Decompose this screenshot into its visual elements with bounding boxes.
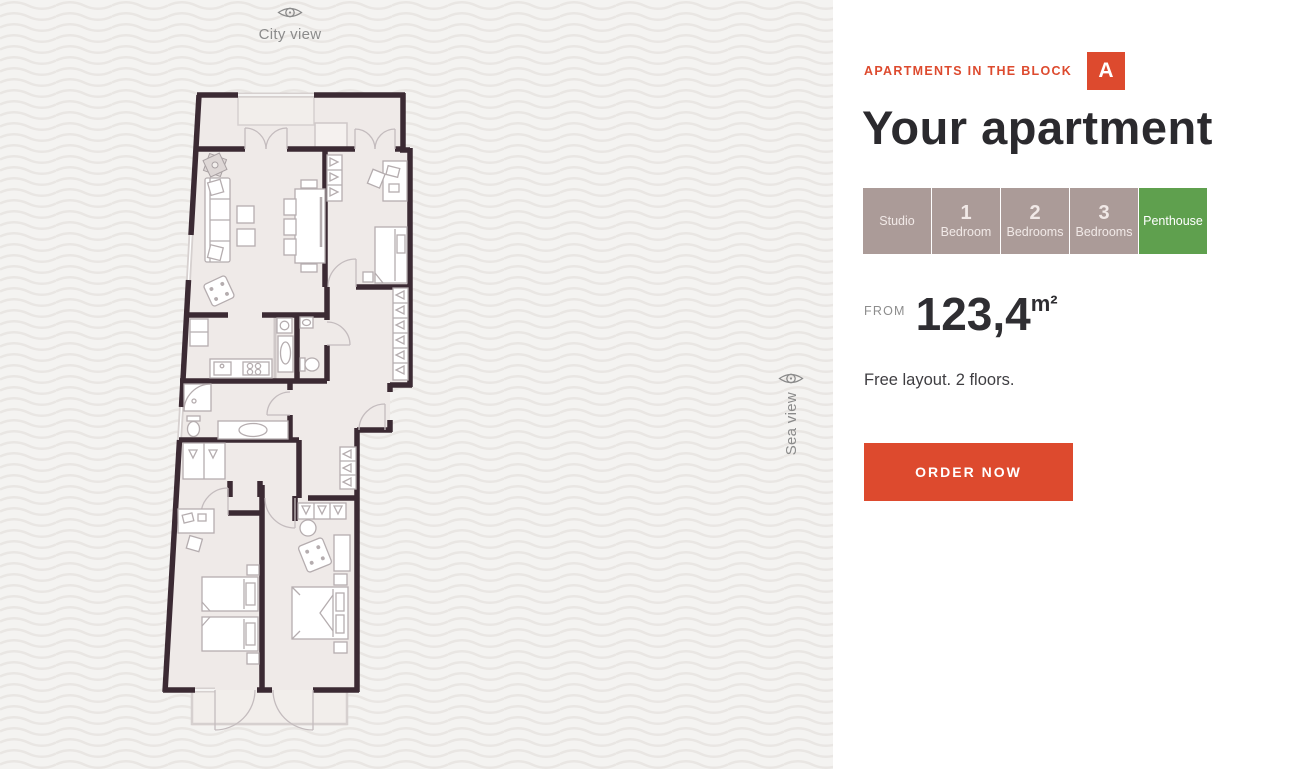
bedroom-closet-row	[298, 503, 346, 519]
sea-view-label: Sea view	[768, 370, 814, 455]
closet	[183, 443, 225, 479]
sea-view-text: Sea view	[783, 392, 800, 455]
apartment-description: Free layout. 2 floors.	[864, 371, 1014, 390]
tab-2-bedrooms[interactable]: 2 Bedrooms	[1001, 188, 1069, 254]
eyebrow-row: APARTMENTS IN THE BLOCK A	[864, 52, 1125, 90]
tab-label: Bedrooms	[1076, 225, 1133, 239]
apartment-info-panel: APARTMENTS IN THE BLOCK A Your apartment…	[833, 0, 1294, 769]
kitchen-cabinets	[190, 319, 208, 346]
nightstand	[363, 272, 373, 282]
sofa	[205, 178, 230, 262]
area-info: FROM 123,4 m²	[864, 291, 1058, 337]
shower	[184, 384, 211, 411]
twin-bed-2	[202, 617, 258, 651]
tab-studio[interactable]: Studio	[863, 188, 931, 254]
coffee-table	[237, 229, 255, 246]
washer	[277, 318, 292, 333]
apartment-type-tabs: Studio 1 Bedroom 2 Bedrooms 3 Bedrooms P…	[863, 188, 1207, 254]
tab-number: 2	[1029, 202, 1040, 225]
wc-sink	[300, 317, 313, 328]
nightstand	[247, 653, 259, 664]
tab-label: Studio	[879, 214, 914, 228]
toilet-2	[187, 416, 200, 437]
area-unit: m²	[1031, 291, 1058, 317]
eyebrow-label: APARTMENTS IN THE BLOCK	[864, 64, 1072, 78]
nightstand	[334, 642, 347, 653]
twin-bed-1	[202, 577, 258, 611]
double-bed	[292, 587, 348, 639]
tab-label: Bedrooms	[1007, 225, 1064, 239]
tab-label: Penthouse	[1143, 214, 1203, 228]
page: City view Sea view	[0, 0, 1294, 769]
block-badge: A	[1087, 52, 1125, 90]
tab-3-bedrooms[interactable]: 3 Bedrooms	[1070, 188, 1138, 254]
bath	[278, 336, 293, 372]
vanity	[218, 421, 288, 439]
page-title: Your apartment	[862, 100, 1213, 155]
tab-label: Bedroom	[941, 225, 992, 239]
tab-1-bedroom[interactable]: 1 Bedroom	[932, 188, 1000, 254]
apartment-floor-plan	[150, 85, 450, 745]
nightstand	[247, 565, 259, 575]
nightstand	[334, 574, 347, 585]
coffee-table	[237, 206, 254, 223]
tab-number: 3	[1098, 202, 1109, 225]
city-view-label: City view	[245, 4, 335, 43]
toilet	[300, 358, 319, 371]
area-prefix: FROM	[864, 304, 906, 318]
side-table	[300, 520, 316, 536]
area-value: 123,4	[916, 291, 1031, 337]
hall-wardrobe	[340, 447, 356, 489]
city-view-text: City view	[259, 26, 322, 43]
order-now-button[interactable]: ORDER NOW	[864, 443, 1073, 501]
bed-single	[375, 227, 407, 283]
tab-number: 1	[960, 202, 971, 225]
eye-icon	[778, 370, 804, 387]
tab-penthouse[interactable]: Penthouse	[1139, 188, 1207, 254]
corridor-wardrobe	[393, 288, 408, 380]
wardrobe	[327, 155, 342, 201]
dresser	[334, 535, 350, 571]
eye-icon	[277, 4, 303, 21]
kitchen-counter	[210, 359, 272, 378]
floor-plan-panel: City view Sea view	[0, 0, 833, 769]
